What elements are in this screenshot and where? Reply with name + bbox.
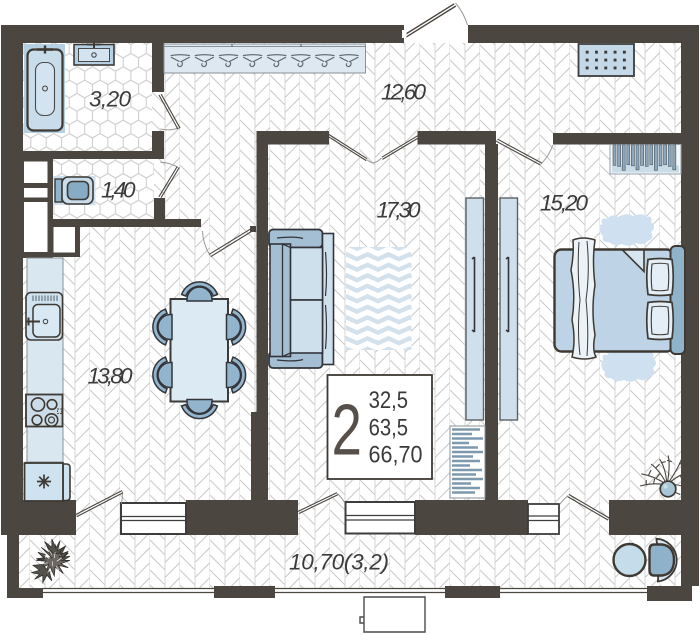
svg-text:1,40: 1,40 <box>101 178 136 203</box>
svg-text:12,60: 12,60 <box>381 80 426 105</box>
svg-text:66,70: 66,70 <box>369 442 423 469</box>
svg-text:15,20: 15,20 <box>540 190 588 215</box>
svg-text:17,30: 17,30 <box>377 198 421 223</box>
svg-text:2: 2 <box>332 389 362 470</box>
svg-text:63,5: 63,5 <box>369 414 409 441</box>
svg-text:10,70(3,2): 10,70(3,2) <box>289 550 389 575</box>
svg-text:13,80: 13,80 <box>88 364 133 389</box>
svg-text:32,5: 32,5 <box>369 387 409 414</box>
svg-text:3,20: 3,20 <box>89 87 131 112</box>
